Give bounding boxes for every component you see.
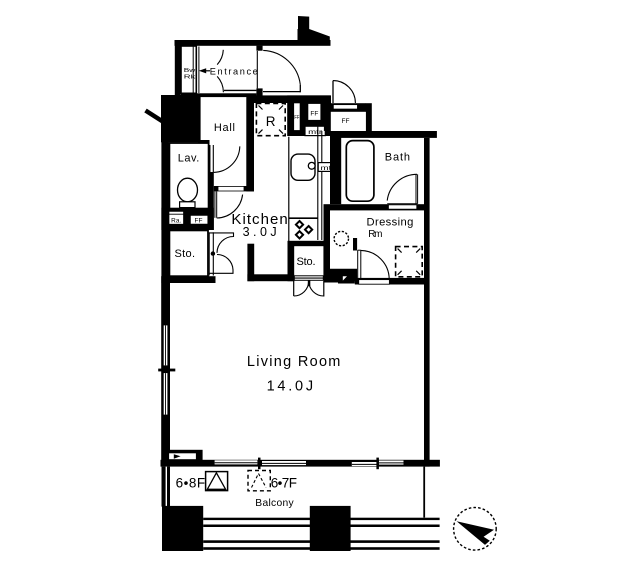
svg-text:6•8F: 6•8F — [176, 476, 206, 491]
svg-text:Hall: Hall — [214, 122, 235, 134]
svg-text:Bw: Bw — [184, 68, 197, 74]
svg-text:Rk: Rk — [184, 74, 196, 80]
svg-text:FF: FF — [294, 115, 299, 121]
svg-text:FF: FF — [342, 119, 350, 125]
svg-text:FF: FF — [310, 111, 318, 118]
svg-text:Sto.: Sto. — [175, 248, 196, 260]
svg-text:Balcony: Balcony — [255, 498, 294, 509]
svg-text:3.0J: 3.0J — [243, 225, 277, 239]
svg-text:Ra.: Ra. — [171, 219, 181, 225]
svg-text:R: R — [266, 114, 276, 129]
svg-text:Sto.: Sto. — [297, 256, 316, 268]
svg-text:Bath: Bath — [385, 152, 410, 164]
svg-text:Living Room: Living Room — [247, 354, 341, 370]
svg-text:Rm: Rm — [368, 229, 382, 240]
svg-text:FF: FF — [195, 219, 203, 225]
svg-text:Lav.: Lav. — [178, 153, 200, 165]
svg-text:mtr: mtr — [308, 129, 322, 136]
svg-text:Entrance: Entrance — [210, 66, 258, 76]
svg-text:6•7F: 6•7F — [271, 476, 297, 491]
svg-text:Dressing: Dressing — [367, 217, 414, 229]
svg-text:14.0J: 14.0J — [267, 379, 314, 395]
